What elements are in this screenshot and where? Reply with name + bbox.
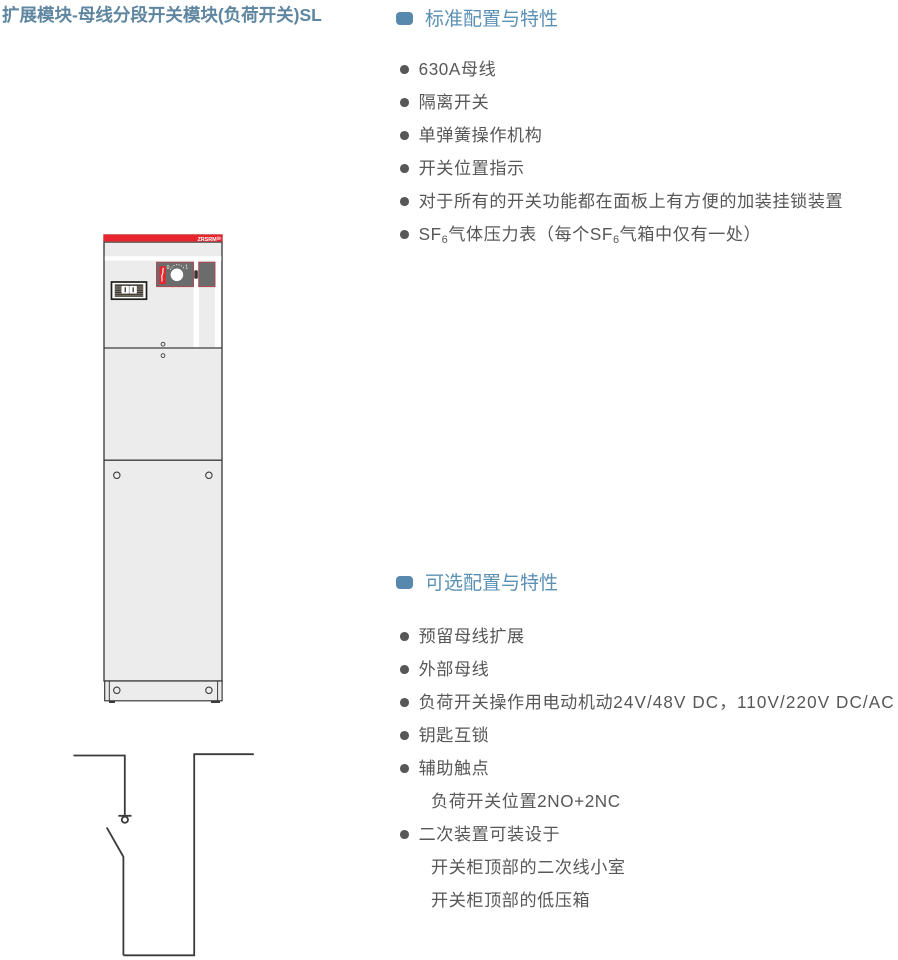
svg-text:0: 0 — [167, 265, 170, 271]
svg-text:1: 1 — [185, 264, 188, 270]
svg-text:ZRSRM: ZRSRM — [198, 237, 218, 243]
